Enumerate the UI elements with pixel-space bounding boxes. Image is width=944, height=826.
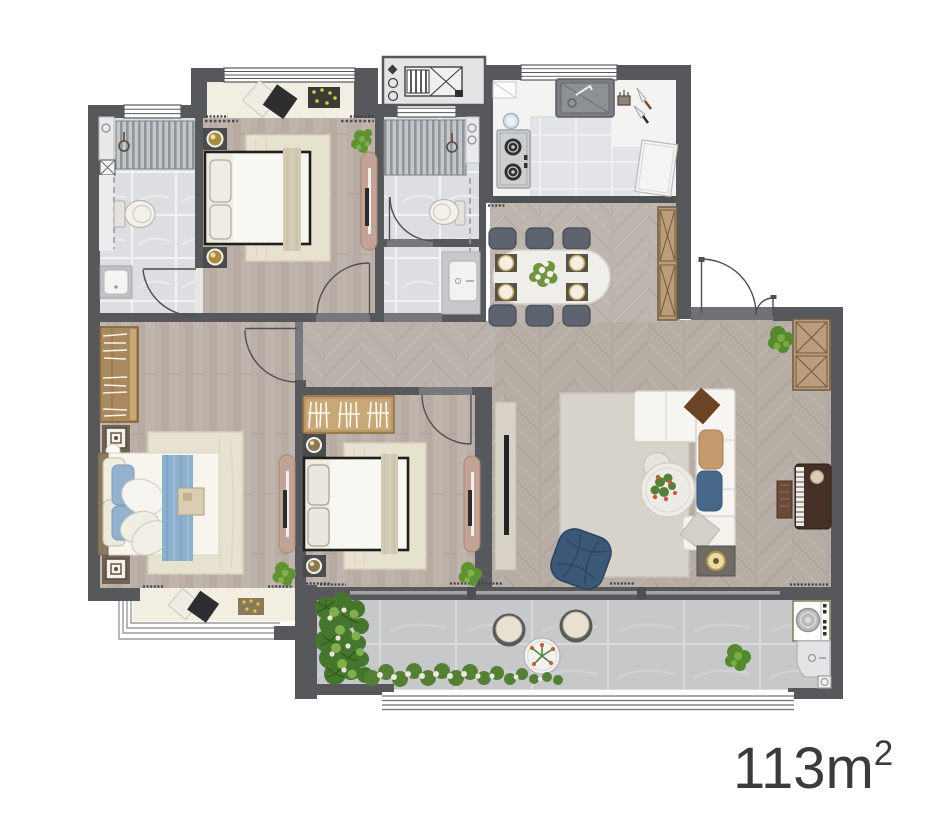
svg-text:113m2: 113m2	[733, 734, 893, 801]
